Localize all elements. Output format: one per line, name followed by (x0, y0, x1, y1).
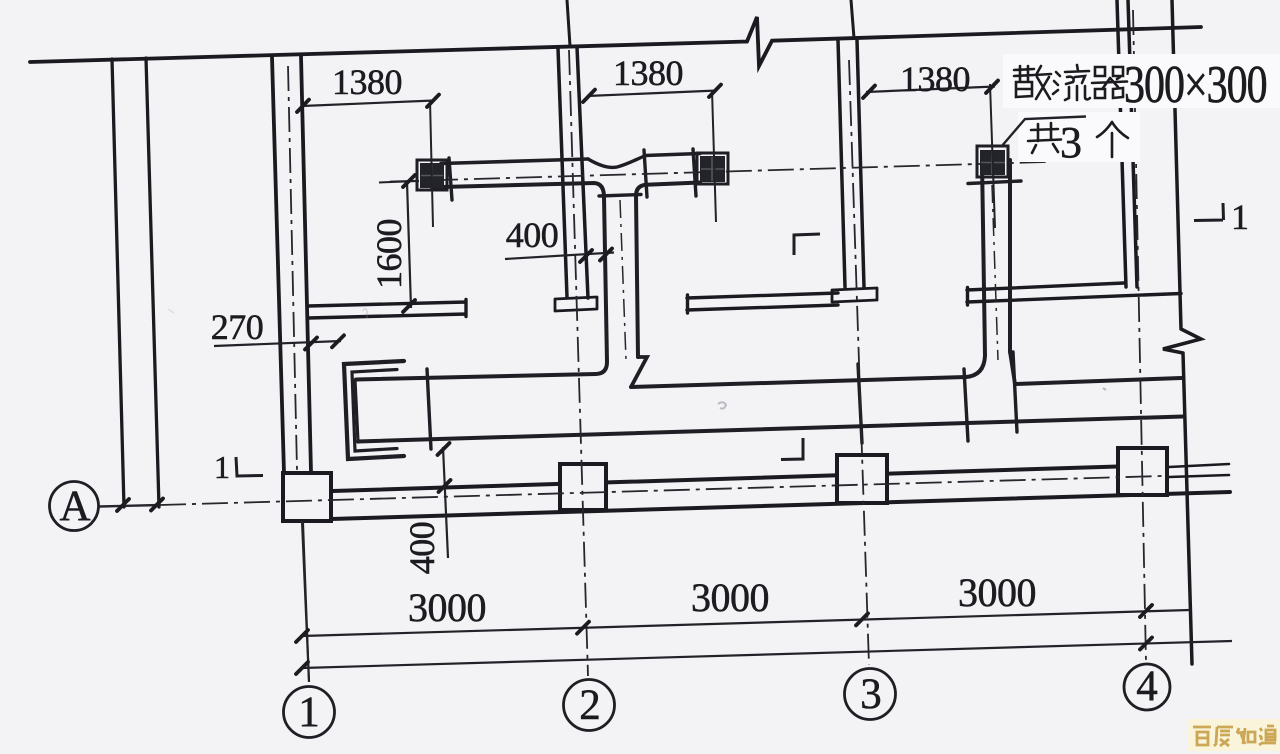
svg-text:3: 3 (860, 671, 882, 718)
svg-text:400: 400 (402, 522, 442, 575)
svg-text:1: 1 (1231, 197, 1249, 237)
svg-text:3: 3 (1060, 118, 1082, 167)
svg-text:300×300: 300×300 (1124, 57, 1267, 114)
svg-text:4: 4 (1136, 663, 1158, 710)
svg-text:2: 2 (579, 682, 601, 729)
svg-text:1380: 1380 (900, 59, 970, 99)
svg-text:1: 1 (214, 449, 230, 485)
svg-text:1380: 1380 (332, 62, 402, 102)
svg-text:A: A (59, 483, 90, 530)
svg-text:1600: 1600 (369, 219, 409, 289)
svg-text:270: 270 (211, 307, 264, 347)
svg-text:400: 400 (506, 215, 559, 255)
svg-text:1: 1 (298, 689, 320, 736)
svg-text:3000: 3000 (691, 575, 769, 620)
svg-text:1380: 1380 (613, 53, 683, 93)
svg-text:3000: 3000 (958, 570, 1036, 615)
svg-text:3000: 3000 (408, 585, 486, 630)
